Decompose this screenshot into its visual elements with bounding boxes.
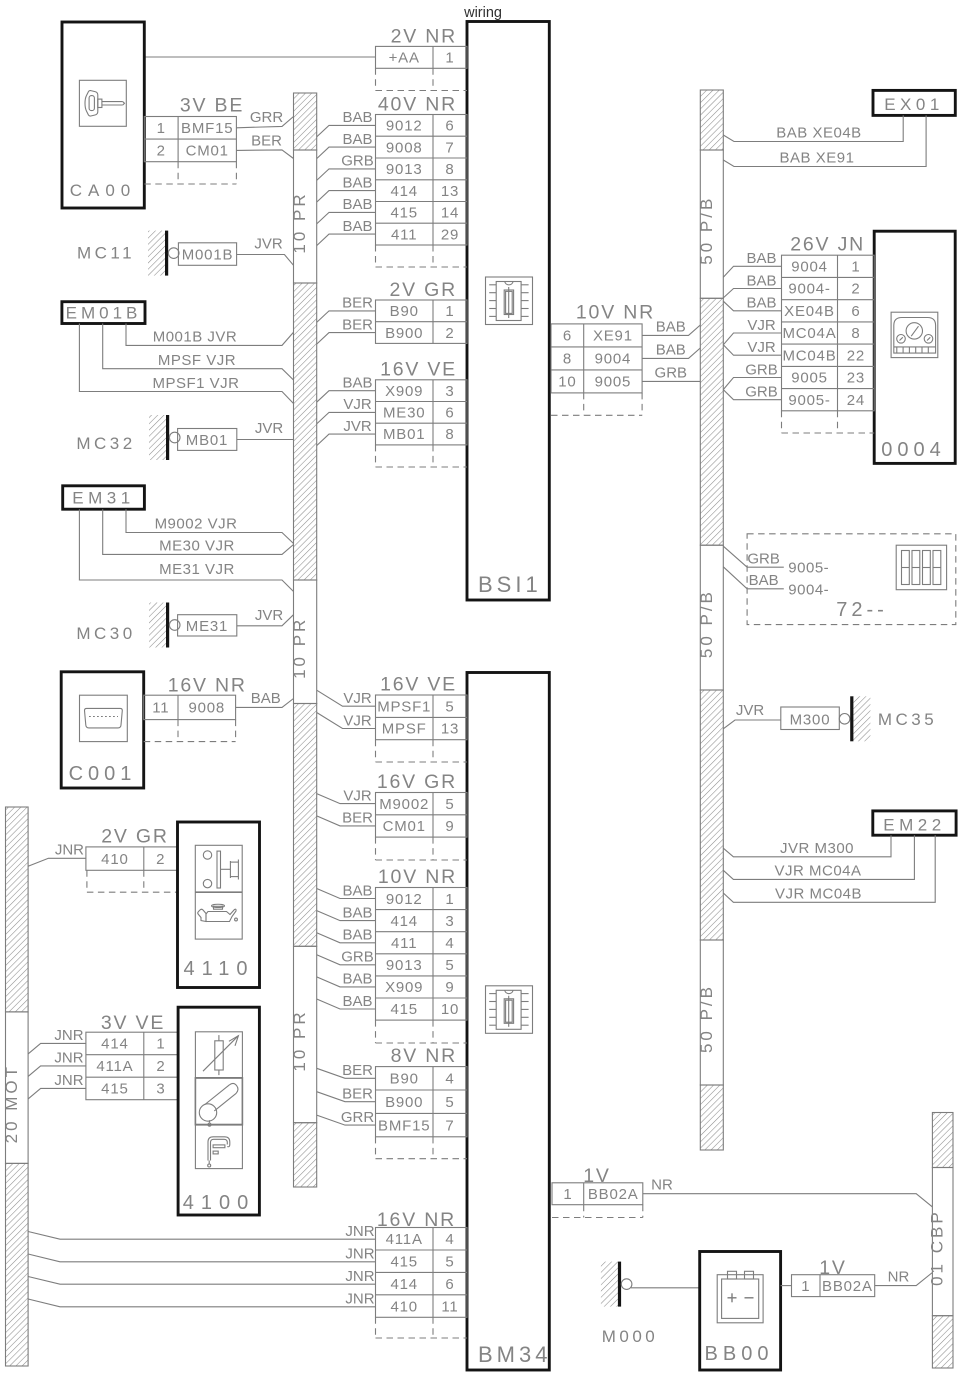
svg-text:13: 13 [441, 721, 459, 738]
svg-text:XE91: XE91 [593, 328, 633, 345]
svg-text:16V NR: 16V NR [168, 675, 247, 697]
svg-text:415: 415 [101, 1081, 128, 1098]
svg-text:26V JN: 26V JN [790, 234, 865, 256]
svg-text:M001B: M001B [182, 247, 234, 264]
svg-text:4110: 4110 [183, 958, 254, 980]
svg-text:1V: 1V [583, 1165, 610, 1187]
svg-text:GRR: GRR [341, 1109, 375, 1126]
svg-text:414: 414 [390, 183, 417, 200]
svg-text:9005: 9005 [595, 374, 632, 391]
svg-text:9: 9 [445, 979, 454, 996]
svg-text:11: 11 [152, 700, 169, 717]
svg-text:1: 1 [445, 303, 454, 320]
svg-text:MPSF1 VJR: MPSF1 VJR [152, 375, 239, 392]
svg-text:JVR: JVR [736, 702, 765, 719]
svg-text:BAB: BAB [342, 174, 372, 191]
svg-text:5: 5 [445, 1094, 454, 1111]
svg-text:GRB: GRB [747, 551, 780, 568]
svg-text:JVR: JVR [255, 607, 284, 624]
svg-text:40V NR: 40V NR [378, 94, 457, 116]
svg-text:0004: 0004 [881, 439, 946, 461]
svg-text:10: 10 [441, 1001, 459, 1018]
svg-text:2V GR: 2V GR [101, 826, 169, 848]
svg-text:BER: BER [342, 295, 373, 312]
svg-text:M300: M300 [790, 711, 831, 728]
svg-text:JVR M300: JVR M300 [780, 840, 854, 857]
svg-text:BAB: BAB [749, 572, 779, 589]
svg-text:JNR: JNR [55, 842, 84, 859]
svg-text:10V NR: 10V NR [576, 302, 655, 324]
svg-text:+AA: +AA [389, 50, 420, 67]
svg-text:16V GR: 16V GR [377, 771, 457, 793]
svg-text:M001B JVR: M001B JVR [153, 329, 238, 346]
svg-text:13: 13 [441, 183, 459, 200]
svg-text:MC30: MC30 [76, 624, 135, 643]
svg-text:BMF15: BMF15 [181, 120, 233, 137]
svg-text:9008: 9008 [386, 139, 423, 156]
svg-text:BER: BER [342, 810, 373, 827]
svg-text:9013: 9013 [386, 957, 423, 974]
svg-text:8: 8 [851, 325, 860, 342]
svg-text:GRB: GRB [745, 384, 778, 401]
svg-text:9012: 9012 [386, 891, 423, 908]
svg-text:BAB: BAB [342, 927, 372, 944]
svg-text:8: 8 [445, 161, 454, 178]
svg-text:GRR: GRR [250, 109, 284, 126]
svg-text:8: 8 [563, 351, 572, 368]
svg-text:X909: X909 [385, 979, 423, 996]
svg-text:BAB: BAB [342, 109, 372, 126]
svg-text:5: 5 [445, 1253, 454, 1270]
svg-text:9004-: 9004- [788, 281, 830, 298]
svg-text:9004: 9004 [595, 351, 632, 368]
svg-text:8: 8 [445, 426, 454, 443]
svg-text:BM34: BM34 [478, 1342, 551, 1367]
svg-text:2: 2 [157, 143, 166, 160]
svg-text:3V BE: 3V BE [180, 95, 244, 117]
svg-text:2V NR: 2V NR [391, 26, 457, 48]
svg-text:BB02A: BB02A [588, 1186, 639, 1203]
svg-text:CA00: CA00 [70, 181, 137, 200]
svg-text:16V NR: 16V NR [377, 1209, 456, 1231]
svg-text:NR: NR [651, 1177, 673, 1194]
svg-text:50 P/B: 50 P/B [697, 589, 716, 658]
svg-text:MPSF: MPSF [382, 721, 427, 738]
svg-text:2: 2 [445, 325, 454, 342]
svg-text:10 PR: 10 PR [290, 191, 309, 253]
svg-text:2: 2 [156, 1058, 165, 1075]
svg-text:B900: B900 [385, 1094, 423, 1111]
svg-text:VJR: VJR [343, 787, 372, 804]
svg-text:2: 2 [851, 281, 860, 298]
svg-text:6: 6 [445, 118, 454, 135]
svg-text:MPSF VJR: MPSF VJR [158, 352, 236, 369]
svg-text:BAB: BAB [342, 882, 372, 899]
svg-text:9004-: 9004- [788, 582, 829, 599]
svg-text:EM31: EM31 [72, 489, 134, 508]
svg-text:14: 14 [441, 205, 459, 222]
svg-text:EM01B: EM01B [66, 304, 142, 323]
svg-text:MC04A: MC04A [782, 325, 836, 342]
svg-text:BAB XE91: BAB XE91 [780, 150, 855, 167]
svg-text:ME30: ME30 [383, 405, 425, 422]
svg-text:VJR: VJR [343, 690, 372, 707]
svg-text:BER: BER [342, 316, 373, 333]
svg-text:ME31 VJR: ME31 VJR [159, 561, 235, 578]
svg-text:6: 6 [563, 328, 572, 345]
svg-text:410: 410 [390, 1298, 417, 1315]
svg-text:414: 414 [390, 1276, 417, 1293]
svg-text:10: 10 [558, 374, 576, 391]
svg-text:M9002 VJR: M9002 VJR [155, 516, 238, 533]
svg-text:B900: B900 [385, 325, 423, 342]
svg-text:NR: NR [888, 1269, 910, 1286]
svg-text:6: 6 [445, 405, 454, 422]
svg-text:414: 414 [390, 913, 417, 930]
svg-text:GRB: GRB [745, 361, 778, 378]
svg-text:JNR: JNR [54, 1027, 83, 1044]
svg-text:20 MOT: 20 MOT [2, 1064, 21, 1143]
svg-text:23: 23 [847, 370, 865, 387]
svg-text:EX01: EX01 [884, 95, 944, 114]
svg-text:411A: 411A [386, 1231, 423, 1248]
svg-text:3: 3 [156, 1081, 165, 1098]
svg-text:415: 415 [390, 205, 417, 222]
svg-text:MC11: MC11 [77, 244, 135, 263]
svg-text:9: 9 [445, 818, 454, 835]
svg-text:BAB: BAB [746, 272, 776, 289]
svg-text:BAB: BAB [342, 218, 372, 235]
svg-text:2: 2 [156, 851, 165, 868]
svg-text:1V: 1V [819, 1257, 846, 1279]
svg-text:11: 11 [441, 1298, 458, 1315]
svg-text:XE04B: XE04B [784, 303, 835, 320]
svg-text:JNR: JNR [54, 1072, 83, 1089]
svg-text:10 PR: 10 PR [290, 617, 309, 679]
svg-text:JNR: JNR [345, 1223, 374, 1240]
svg-text:50 P/B: 50 P/B [697, 984, 716, 1053]
svg-text:MB01: MB01 [383, 426, 425, 443]
svg-text:ME31: ME31 [186, 618, 228, 635]
svg-text:VJR MC04B: VJR MC04B [775, 885, 862, 902]
svg-text:6: 6 [851, 303, 860, 320]
svg-text:7: 7 [445, 1117, 454, 1134]
svg-text:X909: X909 [385, 383, 423, 400]
svg-text:GRB: GRB [655, 365, 688, 382]
svg-text:1: 1 [851, 259, 860, 276]
svg-text:411A: 411A [96, 1058, 133, 1075]
svg-text:JNR: JNR [345, 1291, 374, 1308]
svg-text:10 PR: 10 PR [290, 1009, 309, 1071]
svg-text:EM22: EM22 [883, 816, 945, 835]
svg-text:CM01: CM01 [383, 818, 426, 835]
svg-text:C001: C001 [69, 763, 137, 785]
svg-text:GRB: GRB [341, 153, 374, 170]
svg-text:BAB: BAB [342, 971, 372, 988]
svg-text:BSI1: BSI1 [478, 572, 542, 597]
svg-text:VJR: VJR [747, 317, 776, 334]
svg-text:BER: BER [342, 1086, 373, 1103]
svg-text:4: 4 [445, 1071, 454, 1088]
svg-text:M000: M000 [602, 1327, 659, 1346]
svg-text:BAB: BAB [656, 319, 686, 336]
svg-text:5: 5 [445, 796, 454, 813]
svg-text:3: 3 [445, 383, 454, 400]
svg-text:72--: 72-- [836, 599, 888, 621]
svg-text:BAB: BAB [251, 690, 281, 707]
svg-text:VJR MC04A: VJR MC04A [774, 863, 861, 880]
svg-text:BB02A: BB02A [822, 1278, 873, 1295]
svg-text:VJR: VJR [343, 396, 372, 413]
svg-text:BAB: BAB [656, 342, 686, 359]
svg-text:4: 4 [445, 1231, 454, 1248]
svg-text:5: 5 [445, 698, 454, 715]
svg-text:ME30 VJR: ME30 VJR [159, 538, 235, 555]
svg-text:411: 411 [391, 935, 417, 952]
svg-text:BER: BER [342, 1062, 373, 1079]
svg-text:MPSF1: MPSF1 [377, 698, 431, 715]
svg-text:B90: B90 [390, 1071, 419, 1088]
svg-text:JNR: JNR [345, 1268, 374, 1285]
svg-text:1: 1 [156, 1036, 165, 1053]
svg-text:BER: BER [251, 133, 282, 150]
svg-text:MC04B: MC04B [782, 347, 836, 364]
svg-text:8V NR: 8V NR [391, 1045, 457, 1067]
svg-text:M9002: M9002 [379, 796, 429, 813]
svg-text:BMF15: BMF15 [378, 1117, 430, 1134]
svg-text:JVR: JVR [254, 235, 283, 252]
svg-text:410: 410 [101, 851, 128, 868]
svg-text:MB01: MB01 [186, 432, 228, 449]
svg-text:24: 24 [847, 392, 865, 409]
svg-text:JNR: JNR [54, 1050, 83, 1067]
svg-text:7: 7 [445, 139, 454, 156]
svg-text:B90: B90 [390, 303, 419, 320]
svg-text:3: 3 [445, 913, 454, 930]
svg-text:BAB: BAB [342, 904, 372, 921]
svg-text:BAB: BAB [746, 250, 776, 267]
svg-text:BAB: BAB [746, 295, 776, 312]
svg-text:1: 1 [563, 1186, 572, 1203]
svg-text:9013: 9013 [386, 161, 423, 178]
svg-text:4100: 4100 [183, 1192, 256, 1214]
svg-text:GRB: GRB [341, 949, 374, 966]
svg-text:CM01: CM01 [186, 143, 229, 160]
svg-text:9004: 9004 [791, 259, 828, 276]
svg-text:414: 414 [101, 1036, 128, 1053]
svg-text:16V VE: 16V VE [380, 359, 457, 381]
svg-text:JNR: JNR [345, 1246, 374, 1263]
svg-text:wiring: wiring [463, 5, 502, 21]
svg-text:BAB: BAB [342, 375, 372, 392]
svg-text:BAB: BAB [342, 196, 372, 213]
svg-text:3V VE: 3V VE [101, 1012, 165, 1034]
svg-text:16V VE: 16V VE [380, 674, 457, 696]
svg-text:9005-: 9005- [788, 560, 829, 577]
svg-text:415: 415 [390, 1001, 417, 1018]
svg-text:BB00: BB00 [705, 1343, 774, 1365]
svg-text:50 P/B: 50 P/B [697, 196, 716, 265]
svg-text:BAB XE04B: BAB XE04B [776, 125, 861, 142]
svg-text:BAB: BAB [342, 993, 372, 1010]
svg-text:5: 5 [445, 957, 454, 974]
svg-text:JVR: JVR [343, 418, 372, 435]
svg-text:29: 29 [441, 226, 459, 243]
svg-text:JVR: JVR [255, 420, 284, 437]
svg-text:MC35: MC35 [878, 710, 937, 729]
svg-text:22: 22 [847, 347, 865, 364]
svg-text:4: 4 [445, 935, 454, 952]
svg-text:9005: 9005 [791, 370, 828, 387]
svg-text:9008: 9008 [189, 700, 226, 717]
svg-text:VJR: VJR [747, 339, 776, 356]
svg-text:1: 1 [445, 891, 454, 908]
svg-text:VJR: VJR [343, 712, 372, 729]
svg-text:415: 415 [390, 1253, 417, 1270]
svg-text:1: 1 [445, 50, 454, 67]
svg-text:1: 1 [157, 120, 166, 137]
svg-text:411: 411 [391, 226, 417, 243]
svg-text:1: 1 [801, 1278, 810, 1295]
svg-text:BAB: BAB [342, 131, 372, 148]
svg-text:2V GR: 2V GR [389, 279, 457, 301]
svg-text:6: 6 [445, 1276, 454, 1293]
svg-text:MC32: MC32 [76, 434, 135, 453]
svg-text:9005-: 9005- [788, 392, 830, 409]
svg-text:10V NR: 10V NR [378, 866, 457, 888]
svg-text:9012: 9012 [386, 118, 423, 135]
